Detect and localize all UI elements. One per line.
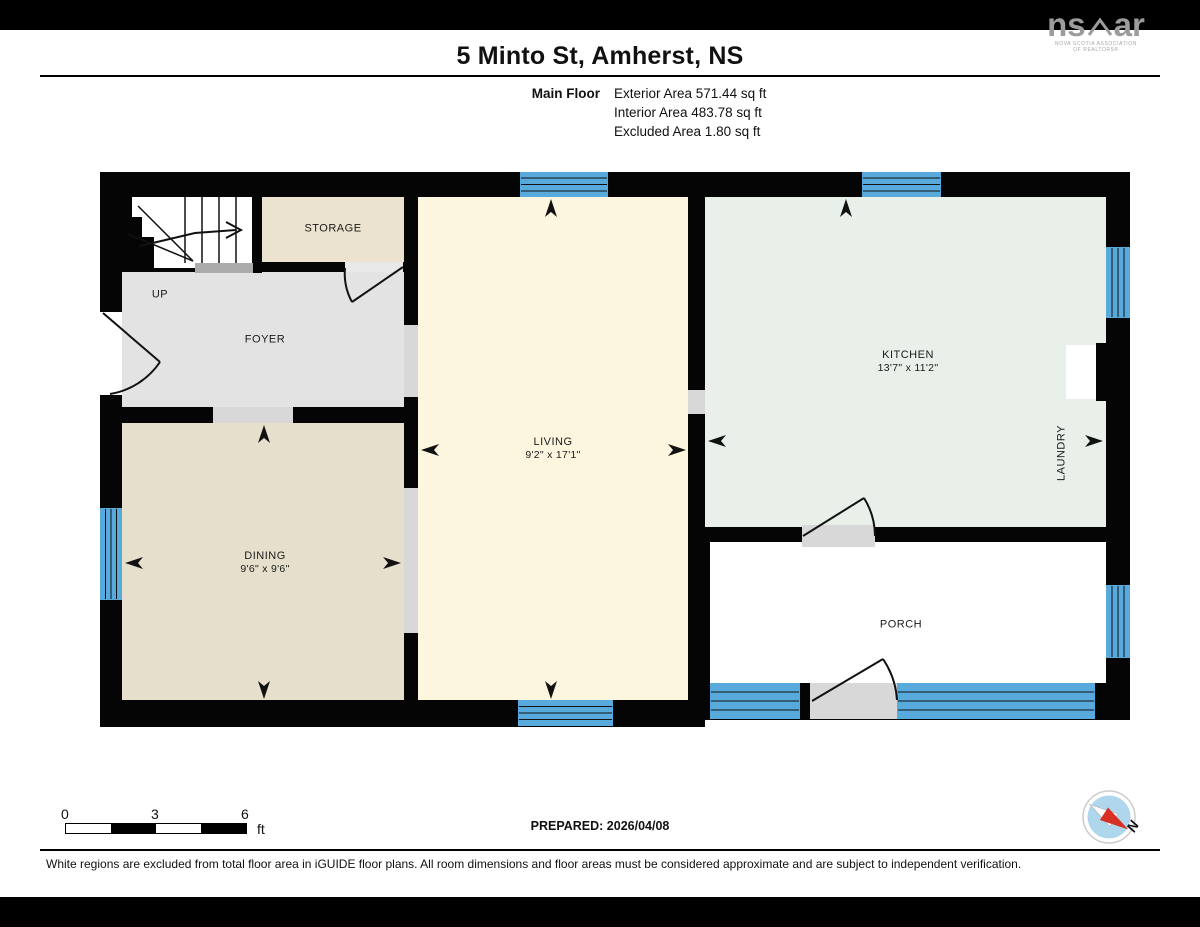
room-label-porch: PORCH: [880, 619, 922, 632]
exterior-area: Exterior Area 571.44 sq ft: [614, 84, 766, 103]
room-label-dining: DINING9'6" x 9'6": [240, 550, 289, 576]
house-icon: [1087, 12, 1113, 38]
opening-storage: [345, 262, 403, 272]
room-floors: [122, 197, 1106, 700]
logo-text-right: ar: [1114, 12, 1145, 38]
room-label-storage: STORAGE: [304, 223, 361, 236]
logo-text-left: ns: [1047, 12, 1086, 38]
prepared-date: PREPARED: 2026/04/08: [0, 819, 1200, 833]
bottom-black-bar: [0, 897, 1200, 927]
room-porch-floor: [710, 542, 1106, 683]
opening-living-kitchen: [688, 390, 705, 414]
room-label-laundry: LAUNDRY: [1056, 425, 1069, 481]
footer-rule: [40, 849, 1160, 851]
header-rule: [40, 75, 1160, 77]
sill-porch-door: [810, 683, 897, 719]
opening-foyer-dining: [213, 407, 293, 423]
excluded-region: [1066, 345, 1096, 399]
nsar-logo: ns ar NOVA SCOTIA ASSOCIATION OF REALTOR…: [1006, 12, 1186, 53]
room-label-living: 9'2" x 17'1" LIVING9'2" x 17'1": [525, 436, 580, 462]
opening-foyer-living: [404, 325, 418, 397]
disclaimer-text: White regions are excluded from total fl…: [46, 857, 1176, 871]
sill-kitchen-door: [802, 525, 875, 547]
interior-area: Interior Area 483.78 sq ft: [614, 103, 766, 122]
floor-plan: STORAGE UP FOYER 9'2" x 17'1" LIVING9'2"…: [100, 172, 1130, 727]
stairs-landing: [195, 263, 253, 273]
opening-entry-door: [100, 312, 122, 395]
room-label-up: UP: [152, 289, 168, 302]
room-label-kitchen: KITCHEN13'7" x 11'2": [878, 349, 939, 375]
floorplan-page: 5 Minto St, Amherst, NS Main Floor Exter…: [0, 0, 1200, 927]
room-label-foyer: FOYER: [245, 334, 285, 347]
floor-label: Main Floor: [0, 84, 600, 103]
logo-subtitle: NOVA SCOTIA ASSOCIATION OF REALTORS®: [1006, 41, 1186, 53]
nsar-logo-mark: ns ar: [1006, 12, 1186, 38]
excluded-area: Excluded Area 1.80 sq ft: [614, 122, 766, 141]
area-stats: Exterior Area 571.44 sq ft Interior Area…: [614, 84, 766, 141]
wall-jog: [1096, 343, 1106, 401]
logo-subtitle-line2: OF REALTORS®: [1006, 47, 1186, 53]
floor-plan-drawing: [100, 172, 1130, 727]
opening-dining-living: [404, 488, 418, 633]
